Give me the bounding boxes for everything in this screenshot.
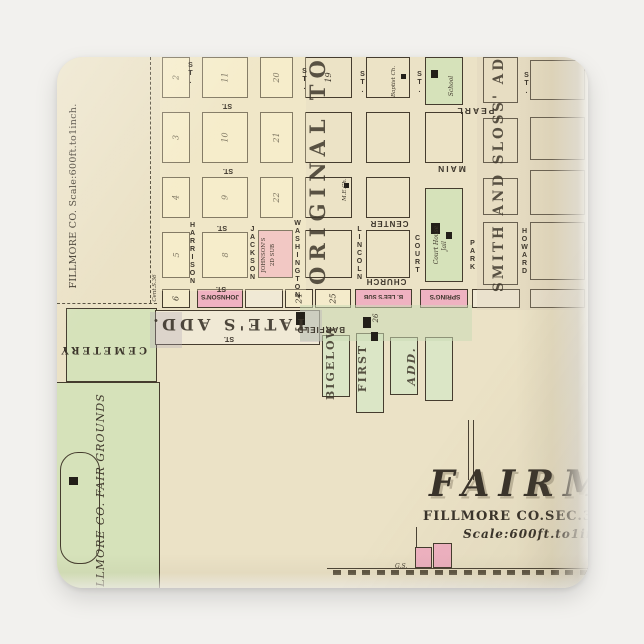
block-number: 26 — [373, 311, 380, 325]
yellow-wash-area — [160, 57, 306, 291]
map-label: MAIN — [432, 164, 470, 174]
street-label: LINCOLN — [353, 226, 366, 282]
lot-tick — [493, 570, 501, 575]
map-subtitle: FILLMORE CO.SEC.30.T.8. — [423, 509, 588, 524]
court-house-label: Court House — [434, 225, 440, 265]
map-block — [425, 112, 463, 163]
building-mark — [371, 332, 378, 341]
lot-tick — [536, 570, 544, 575]
map-label: B. LEE'S SUB — [356, 293, 411, 299]
lot-tick — [362, 570, 370, 575]
map-label: CEMETERY — [73, 344, 147, 355]
boundary-line — [150, 57, 151, 303]
pink-square — [415, 547, 432, 568]
jail-label: Jail — [442, 233, 448, 259]
lot-tick — [478, 570, 486, 575]
lot-tick — [391, 570, 399, 575]
lot-tick — [551, 570, 559, 575]
building-mark — [363, 317, 371, 328]
boundary-line — [327, 568, 588, 569]
building-mark — [431, 70, 438, 78]
map-label: JOHNSON'S — [198, 293, 242, 300]
map-label: TATE'S ADD. — [165, 315, 307, 334]
street-label: HARRISON — [186, 228, 199, 280]
fair-grounds-label: FILLMORE CO. FAIR GROUNDS — [95, 393, 106, 588]
map-block — [366, 177, 410, 218]
map-block — [366, 112, 410, 163]
lot-tick — [580, 570, 588, 575]
map-label: ST. — [220, 167, 236, 174]
street-label: COURT — [411, 229, 424, 281]
section-corner-label: Cent.S.36 — [153, 271, 159, 305]
smith-and-sloss-label: SMITH AND SLOSS' ADD. — [493, 57, 507, 292]
street-label: ST. — [356, 74, 369, 91]
lot-tick — [522, 570, 530, 575]
lot-tick — [565, 570, 573, 575]
johnsons-2d-sub-label: 2D SUB — [271, 237, 277, 273]
map-label: ST. — [219, 102, 235, 109]
map-label: CHURCH — [365, 277, 407, 286]
bigelow-column — [425, 337, 453, 401]
lot-tick — [464, 570, 472, 575]
me-church-label: M.E.Ch. — [343, 179, 349, 201]
map-block — [366, 230, 410, 278]
lot-tick — [420, 570, 428, 575]
street-label: WASHINGTON — [291, 221, 304, 299]
building-mark — [69, 477, 78, 485]
johnsons-2d-sub-label: JOHNSON'S — [262, 233, 268, 277]
street-label: ST. — [520, 75, 533, 92]
map-label: CENTER — [368, 219, 410, 228]
map-label: G.S. — [395, 563, 407, 570]
school-block — [425, 57, 463, 105]
lot-tick — [435, 570, 443, 575]
boundary-line — [416, 527, 417, 547]
plat-map: 23451110982021221962425ST.HARRISONJACKSO… — [57, 57, 588, 588]
magnet: 23451110982021221962425ST.HARRISONJACKSO… — [57, 57, 588, 588]
pink-square — [433, 543, 452, 568]
lot-tick — [348, 570, 356, 575]
map-label: SPRING'S — [423, 293, 467, 300]
map-label: ST. — [221, 335, 237, 342]
lot-tick — [449, 570, 457, 575]
margin-scale-label: FILLMORE CO. Scale:600ft.to1inch. — [69, 85, 79, 307]
street-label: JACKSON — [246, 228, 259, 280]
lot-tick — [406, 570, 414, 575]
product-photo: 23451110982021221962425ST.HARRISONJACKSO… — [0, 0, 644, 644]
map-title: FAIRMONT — [429, 463, 588, 505]
map-block — [245, 289, 283, 308]
street-label: ST. — [184, 65, 197, 83]
lot-tick — [377, 570, 385, 575]
map-label: ST. — [214, 224, 230, 231]
lot-tick — [333, 570, 341, 575]
lot-tick — [507, 570, 515, 575]
map-scale-note: Scale:600ft.to1inch. — [463, 527, 588, 541]
bigelow-first-add-label: ADD. — [406, 338, 417, 394]
building-mark — [401, 74, 406, 79]
map-label: ST. — [213, 285, 229, 292]
street-label: ST. — [413, 74, 426, 91]
school-label: School — [449, 71, 455, 101]
original-town-label: ORIGINAL TOWN. — [307, 85, 328, 285]
bigelow-first-add-label: FIRST — [357, 336, 368, 400]
street-label: HOWARD — [518, 226, 531, 278]
baptist-church-label: Baptist Ch. — [392, 67, 398, 97]
map-block: 6 — [162, 289, 190, 308]
bigelow-first-add-label: BIGELOW — [325, 338, 336, 400]
street-label: PARK — [466, 237, 479, 275]
